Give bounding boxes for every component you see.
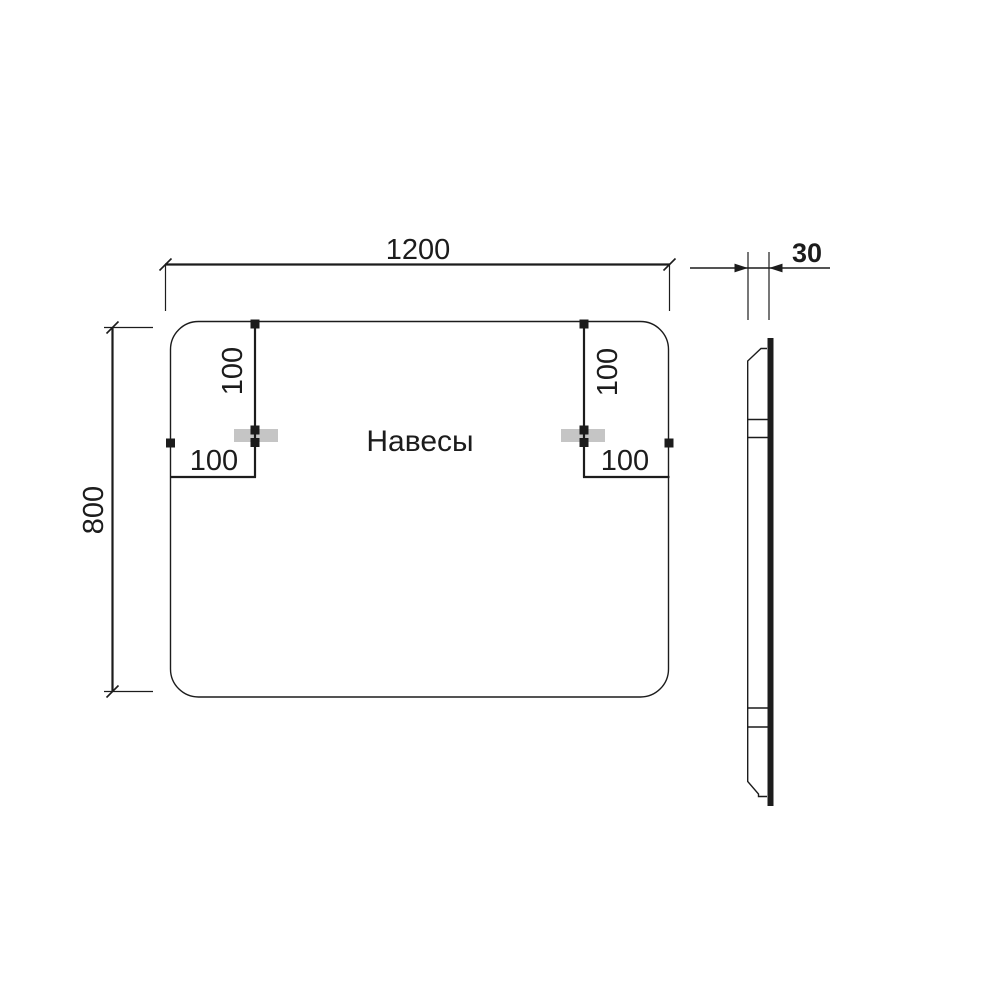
hangers-label: Навесы	[366, 425, 473, 458]
left-hanger-top-offset-text: 100	[217, 347, 249, 395]
left-hanger-dimensions: 100 100	[166, 320, 278, 478]
arrowhead-right-icon	[735, 264, 749, 273]
mount-point-marker	[166, 439, 175, 448]
left-hanger-edge-offset-text: 100	[190, 445, 238, 477]
width-dimension: 1200	[160, 234, 676, 311]
mount-point-marker	[580, 438, 589, 447]
technical-drawing-page: 1200 800 100 100	[0, 0, 1000, 1000]
mount-point-marker	[580, 320, 589, 329]
mount-point-marker	[251, 438, 260, 447]
width-dimension-text: 1200	[386, 234, 451, 266]
height-dimension: 800	[78, 322, 153, 698]
mount-point-marker	[665, 439, 674, 448]
mount-point-marker	[251, 426, 260, 435]
backing-outline	[748, 349, 767, 797]
right-hanger-edge-offset-text: 100	[601, 445, 649, 477]
right-hanger-dimensions: 100 100	[561, 320, 674, 478]
thickness-dimension: 30	[690, 238, 830, 320]
right-hanger-top-offset-text: 100	[592, 348, 624, 396]
arrowhead-left-icon	[769, 264, 783, 273]
thickness-dimension-text: 30	[792, 238, 822, 268]
height-dimension-text: 800	[78, 486, 110, 534]
side-profile	[748, 338, 774, 806]
mount-point-marker	[251, 320, 260, 329]
side-view: 30	[690, 238, 830, 806]
mirror-glass-edge	[768, 338, 774, 806]
front-view: 1200 800 100 100	[78, 234, 676, 698]
mount-point-marker	[580, 426, 589, 435]
mirror-dimension-drawing: 1200 800 100 100	[0, 0, 1000, 1000]
